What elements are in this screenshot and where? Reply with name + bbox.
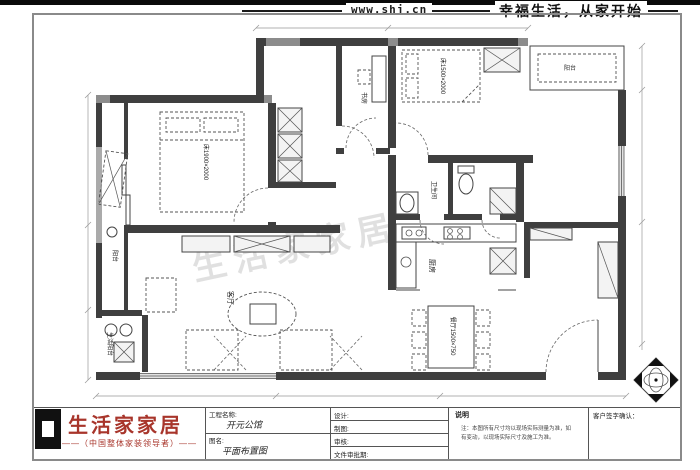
titleblock-row-line-c xyxy=(330,433,449,434)
label-kitchen: 厨房 xyxy=(428,259,437,273)
titleblock-vline-4 xyxy=(588,407,589,459)
compass-mark xyxy=(634,358,678,402)
brand-name: 生活家家居 xyxy=(68,409,183,438)
notes-line-2: 有变动，以现场实际尺寸及施工为准。 xyxy=(461,433,555,441)
notes-title: 说明 xyxy=(455,410,469,420)
notes-line-1: 注：本图所有尺寸均以现场实际测量为准，如 xyxy=(461,424,571,432)
header-rule-left xyxy=(242,10,342,12)
floor-plan: 生活家家居 xyxy=(34,15,682,405)
exterior-walls xyxy=(96,38,626,380)
label-balcony-top: 阳台 xyxy=(564,64,576,72)
project-name-value: 开元公馆 xyxy=(226,418,262,432)
field-checker-label: 审核: xyxy=(334,436,349,446)
label-second-bed: 床1500×2000 xyxy=(439,58,447,95)
label-dining: 餐厅1500×750 xyxy=(449,317,457,357)
label-living: 客厅 xyxy=(226,291,235,305)
titleblock-row-line-d xyxy=(330,446,449,447)
dimension-lines xyxy=(85,25,645,399)
header-rule-mid xyxy=(424,10,490,12)
titleblock-top-line xyxy=(34,407,680,408)
label-master-bed: 床1900×2000 xyxy=(202,144,210,181)
field-approval-date-label: 文件审批期: xyxy=(334,449,368,459)
header-rule-right xyxy=(648,10,678,12)
drawing-name-value: 平面布置图 xyxy=(222,444,267,458)
label-balcony-left: 阳台 xyxy=(111,250,119,262)
logo-mark-hole xyxy=(42,421,54,437)
label-utility: 生活阳台 xyxy=(106,332,114,356)
field-drafter-label: 制图: xyxy=(334,423,349,433)
brand-tagline: ——（中国整体家装领导者）—— xyxy=(62,438,197,449)
label-study: 书房 xyxy=(360,92,368,104)
logo-mark xyxy=(35,409,61,449)
client-signature-label: 客户签字确认： xyxy=(593,410,639,420)
titleblock-row-line-a xyxy=(205,433,331,434)
field-designer-label: 设计: xyxy=(334,410,349,420)
titleblock-row-line-b xyxy=(330,420,449,421)
label-bathroom: 卫生间 xyxy=(430,181,438,199)
top-balcony xyxy=(530,46,624,90)
